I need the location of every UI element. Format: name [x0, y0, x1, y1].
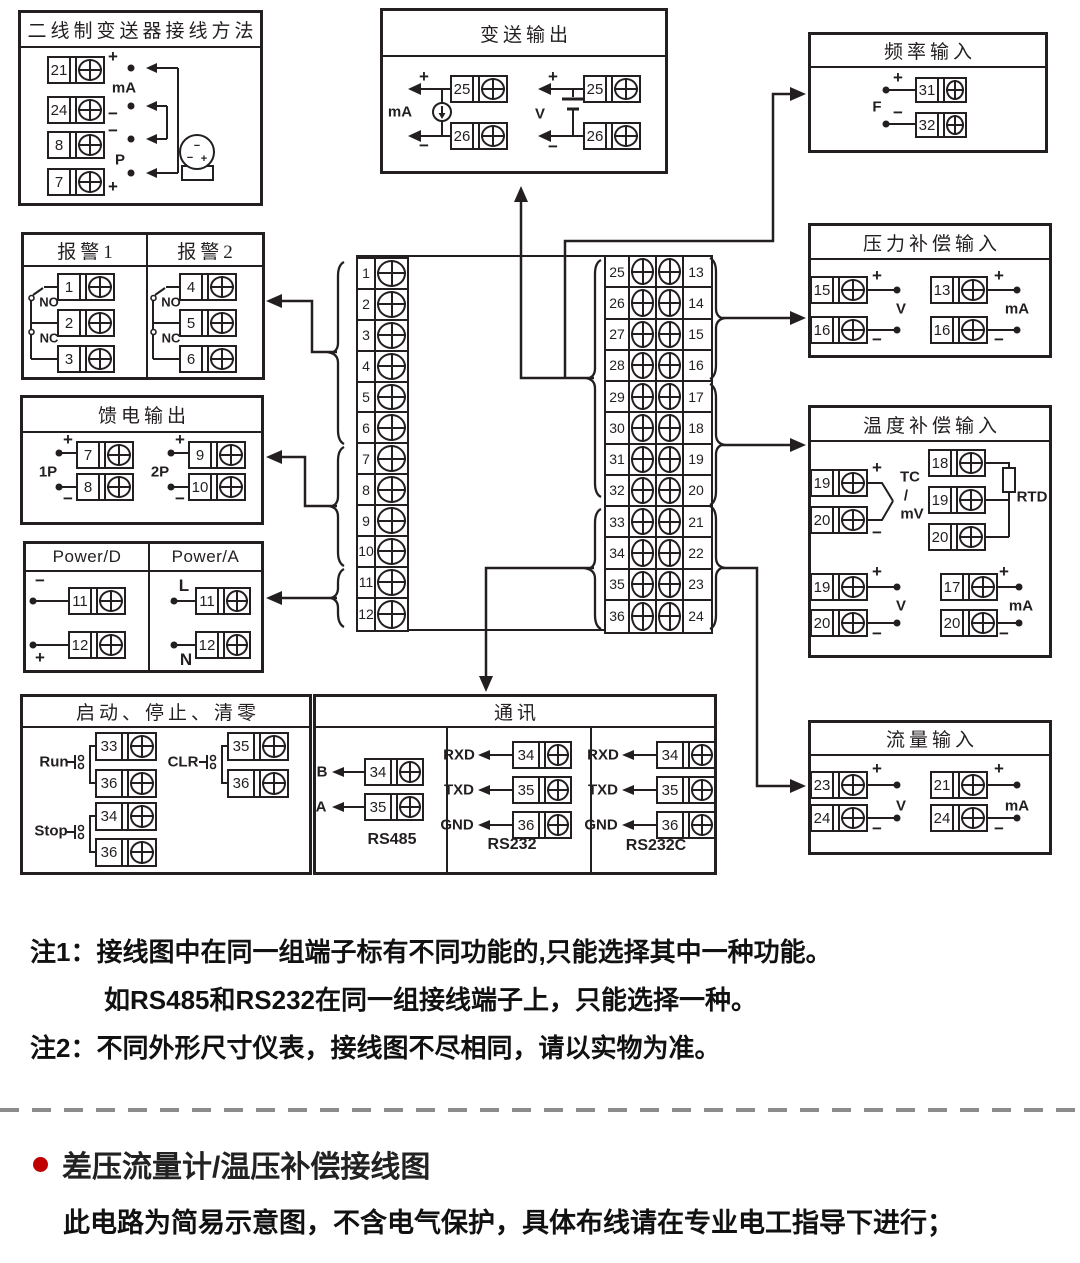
- note-2: 注2：不同外形尺寸仪表，接线图不尽相同，请以实物为准。: [30, 1028, 720, 1065]
- v-label: V: [535, 106, 545, 123]
- terminal: 34: [656, 741, 716, 769]
- screw-icon: [840, 773, 866, 797]
- minus-label: −: [872, 523, 882, 543]
- terminal-row: 1: [358, 259, 407, 290]
- terminal: 34: [95, 802, 157, 831]
- stop-label: Stop: [34, 823, 67, 840]
- screw-icon: [657, 476, 682, 505]
- screw-icon: [106, 443, 132, 467]
- screw-icon: [630, 538, 655, 567]
- arrowhead-icon: [790, 87, 806, 101]
- box-alarm-divider: [146, 265, 148, 377]
- rs232-label: RS232: [488, 836, 537, 854]
- screw-icon: [376, 383, 407, 412]
- screw-icon: [106, 475, 132, 499]
- terminal-number: 13: [932, 278, 954, 302]
- screw-icon: [657, 570, 682, 599]
- box-power-title: Power/D: [53, 547, 122, 567]
- box-alarm-title-band: 报警1报警2: [24, 235, 262, 267]
- terminal-row: 2614: [606, 288, 711, 319]
- terminal-row: 2: [358, 290, 407, 321]
- terminal: 13: [930, 276, 988, 304]
- arrowhead-icon: [266, 294, 282, 308]
- terminal-number: 9: [190, 443, 212, 467]
- mv-label: mV: [900, 506, 923, 523]
- terminal-number: 18: [684, 413, 708, 442]
- plus-label: +: [999, 562, 1009, 582]
- terminal: 31: [915, 77, 967, 103]
- terminal-number: 11: [197, 589, 219, 613]
- box-frequency-input-title-band: 频率输入: [811, 35, 1045, 68]
- terminal-number: 8: [78, 475, 100, 499]
- terminal-number: 20: [684, 476, 708, 505]
- rxd-label: RXD: [587, 747, 619, 764]
- box-power-title-band: Power/DPower/A: [26, 544, 261, 572]
- minus-label: −: [35, 571, 45, 591]
- box-comm-title-band: 通讯: [316, 697, 714, 728]
- terminal-row: 3624: [606, 601, 711, 632]
- screw-icon: [960, 773, 986, 797]
- terminal-number: 25: [585, 77, 607, 101]
- screw-icon: [129, 771, 155, 796]
- terminal-number: 5: [358, 383, 376, 412]
- v-label: V: [896, 301, 906, 318]
- terminal: 11: [68, 587, 126, 615]
- terminal: 34: [512, 741, 572, 769]
- terminal-number: 24: [684, 601, 708, 632]
- box-two-wire-method-title: 二线制变送器接线方法: [23, 16, 257, 43]
- ma-label: mA: [1009, 598, 1033, 615]
- screw-icon: [945, 114, 965, 136]
- terminal: 9: [188, 441, 246, 469]
- plus-label: +: [108, 177, 118, 197]
- terminal-row: 9: [358, 506, 407, 537]
- terminal-row: 3119: [606, 445, 711, 476]
- box-pressure-comp-input-title: 压力补偿输入: [859, 229, 1001, 256]
- wiring-diagram-page: −−+ 二线制变送器接线方法变送输出频率输入报警1报警2馈电输出Power/DP…: [0, 0, 1080, 1263]
- box-power-divider: [148, 570, 150, 670]
- ma-label: mA: [1005, 301, 1029, 318]
- screw-icon: [376, 444, 407, 473]
- run-label: Run: [39, 754, 68, 771]
- terminal: 35: [227, 732, 289, 761]
- terminal-number: 34: [366, 760, 392, 784]
- terminal-number: 14: [684, 288, 708, 317]
- arrowhead-icon: [790, 779, 806, 793]
- plus-label: +: [872, 458, 882, 478]
- screw-icon: [630, 445, 655, 474]
- terminal: 35: [364, 793, 424, 821]
- gnd-label: GND: [584, 817, 617, 834]
- wire-to-alarm: [280, 301, 337, 352]
- note-1-continued: 如RS485和RS232在同一组接线端子上，只能选择一种。: [104, 980, 757, 1017]
- plus-label: +: [63, 430, 73, 450]
- screw-icon: [690, 778, 714, 802]
- screw-icon: [98, 633, 124, 657]
- screw-icon: [657, 351, 682, 380]
- terminal-number: 36: [658, 813, 684, 837]
- plus-label: +: [175, 430, 185, 450]
- screw-icon: [376, 537, 407, 566]
- screw-icon: [129, 734, 155, 759]
- v-label: V: [896, 598, 906, 615]
- terminal: 25: [583, 75, 641, 103]
- b-pin-label: B: [317, 764, 328, 781]
- screw-icon: [480, 124, 506, 148]
- terminal-number: 24: [49, 98, 71, 122]
- terminal-number: 26: [452, 124, 474, 148]
- txd-label: TXD: [588, 782, 618, 799]
- screw-icon: [398, 760, 422, 784]
- screw-icon: [630, 351, 655, 380]
- terminal-row: 11: [358, 568, 407, 599]
- terminal-number: 5: [181, 311, 203, 335]
- terminal-number: 24: [812, 806, 834, 830]
- terminal-number: 16: [812, 318, 834, 342]
- terminal: 1: [57, 273, 115, 301]
- terminal-number: 35: [229, 734, 255, 759]
- box-two-wire-method-title-band: 二线制变送器接线方法: [21, 13, 260, 48]
- box-feed-output-title-band: 馈电输出: [23, 398, 261, 433]
- terminal: 24: [810, 804, 868, 832]
- screw-icon: [958, 525, 984, 549]
- screw-icon: [376, 321, 407, 350]
- box-alarm-title: 报警2: [173, 237, 237, 264]
- ma-label: mA: [1005, 798, 1029, 815]
- arrowhead-icon: [514, 186, 528, 202]
- terminal-number: 18: [930, 451, 952, 475]
- terminal-number: 16: [684, 351, 708, 380]
- minus-label: −: [872, 819, 882, 839]
- screw-icon: [657, 538, 682, 567]
- terminal-number: 3: [358, 321, 376, 350]
- terminal: 26: [450, 122, 508, 150]
- slash-label: /: [904, 488, 908, 505]
- terminal-row: 3018: [606, 413, 711, 444]
- arrowhead-icon: [266, 450, 282, 464]
- screw-icon: [657, 320, 682, 349]
- terminal-number: 6: [181, 347, 203, 371]
- minus-label: −: [175, 489, 185, 509]
- l-label: L: [179, 576, 189, 596]
- terminal: 5: [179, 309, 237, 337]
- screw-icon: [376, 259, 407, 288]
- terminal: 20: [810, 609, 868, 637]
- screw-icon: [970, 611, 996, 635]
- screw-icon: [630, 257, 655, 286]
- plus-label: +: [35, 648, 45, 668]
- arrowhead-icon: [479, 676, 493, 692]
- section-subheading: 此电路为简易示意图，不含电气保护，具体布线请在专业电工指导下进行；: [63, 1201, 954, 1240]
- terminal-number: 35: [514, 778, 540, 802]
- plus-label: +: [994, 759, 1004, 779]
- screw-icon: [840, 806, 866, 830]
- screw-icon: [376, 352, 407, 381]
- terminal-number: 13: [684, 257, 708, 286]
- terminal-number: 24: [932, 806, 954, 830]
- box-pressure-comp-input-title-band: 压力补偿输入: [811, 226, 1049, 260]
- terminal-number: 8: [358, 475, 376, 504]
- terminal-number: 7: [49, 170, 71, 194]
- terminal: 8: [47, 131, 105, 159]
- box-transmit-output-title: 变送输出: [476, 20, 572, 47]
- terminal: 8: [76, 473, 134, 501]
- screw-icon: [630, 476, 655, 505]
- terminal-number: 26: [606, 288, 630, 317]
- terminal: 17: [940, 573, 998, 601]
- box-temp-comp-input-title-band: 温度补偿输入: [811, 408, 1049, 442]
- minus-label: −: [419, 136, 429, 156]
- box-power-title: Power/A: [172, 547, 240, 567]
- terminal-row: 8: [358, 475, 407, 506]
- section-divider: [0, 1108, 1080, 1112]
- screw-icon: [958, 451, 984, 475]
- box-temp-comp-input-title: 温度补偿输入: [859, 411, 1001, 438]
- screw-icon: [77, 98, 103, 122]
- 2p-label: 2P: [151, 464, 169, 481]
- screw-icon: [98, 589, 124, 613]
- terminal-number: 34: [514, 743, 540, 767]
- gnd-label: GND: [440, 817, 473, 834]
- terminal: 19: [810, 573, 868, 601]
- terminal: 16: [930, 316, 988, 344]
- terminal-number: 28: [606, 351, 630, 380]
- terminal-number: 27: [606, 320, 630, 349]
- plus-label: +: [419, 67, 429, 87]
- terminal-row: 2513: [606, 257, 711, 288]
- screw-icon: [546, 813, 570, 837]
- terminal-number: 20: [812, 611, 834, 635]
- box-transmit-output-title-band: 变送输出: [383, 11, 665, 57]
- terminal-row: 3422: [606, 538, 711, 569]
- terminal-number: 12: [358, 599, 376, 630]
- screw-icon: [657, 601, 682, 632]
- center-left-terminals: 123456789101112: [356, 257, 409, 632]
- section-heading: 差压流量计/温压补偿接线图: [62, 1142, 430, 1186]
- screw-icon: [209, 311, 235, 335]
- terminal-number: 36: [97, 840, 123, 865]
- box-feed-output-title: 馈电输出: [94, 401, 190, 428]
- brace-terminals-11-12: [331, 569, 344, 627]
- minus-label: −: [994, 819, 1004, 839]
- plus-label: +: [872, 759, 882, 779]
- terminal: 24: [47, 96, 105, 124]
- screw-icon: [630, 288, 655, 317]
- terminal-number: 10: [190, 475, 212, 499]
- terminal-number: 4: [181, 275, 203, 299]
- screw-icon: [87, 311, 113, 335]
- screw-icon: [657, 257, 682, 286]
- screw-icon: [376, 506, 407, 535]
- terminal-number: 2: [59, 311, 81, 335]
- screw-icon: [960, 318, 986, 342]
- terminal-number: 9: [358, 506, 376, 535]
- terminal-number: 12: [70, 633, 92, 657]
- screw-icon: [840, 318, 866, 342]
- minus-label: −: [63, 489, 73, 509]
- terminal-number: 35: [366, 795, 392, 819]
- terminal-number: 36: [514, 813, 540, 837]
- terminal-number: 17: [684, 382, 708, 411]
- terminal-row: 5: [358, 383, 407, 414]
- tc-label: TC: [900, 469, 920, 486]
- terminal-number: 30: [606, 413, 630, 442]
- screw-icon: [225, 633, 249, 657]
- terminal-number: 21: [684, 507, 708, 536]
- terminal-number: 35: [606, 570, 630, 599]
- wire-to-feed-output: [280, 457, 337, 506]
- terminal-number: 1: [59, 275, 81, 299]
- terminal-number: 20: [942, 611, 964, 635]
- terminal-number: 22: [684, 538, 708, 567]
- terminal-row: 3523: [606, 570, 711, 601]
- wire-to-flow-input: [722, 568, 792, 786]
- terminal: 21: [930, 771, 988, 799]
- minus-label: −: [893, 103, 903, 123]
- ma-label: mA: [388, 104, 412, 121]
- terminal: 12: [68, 631, 126, 659]
- screw-icon: [657, 382, 682, 411]
- minus-label: −: [872, 624, 882, 644]
- screw-icon: [77, 170, 103, 194]
- plus-label: +: [872, 266, 882, 286]
- terminal-number: 35: [658, 778, 684, 802]
- terminal-row: 7: [358, 444, 407, 475]
- terminal-number: 19: [812, 471, 834, 495]
- terminal: 35: [656, 776, 716, 804]
- box-comm-title: 通讯: [490, 698, 540, 725]
- terminal: 6: [179, 345, 237, 373]
- screw-icon: [630, 570, 655, 599]
- brace-terminals-7-10: [331, 447, 344, 566]
- terminal-number: 21: [49, 58, 71, 82]
- arrowhead-icon: [266, 591, 282, 605]
- terminal-row: 2816: [606, 351, 711, 382]
- rtd-label: RTD: [1017, 489, 1048, 506]
- v-label: V: [896, 798, 906, 815]
- no-label: NO: [161, 295, 181, 310]
- screw-icon: [840, 611, 866, 635]
- plus-label: +: [893, 68, 903, 88]
- terminal: 2: [57, 309, 115, 337]
- terminal-number: 11: [70, 589, 92, 613]
- terminal-number: 15: [684, 320, 708, 349]
- terminal: 36: [656, 811, 716, 839]
- box-run-stop-clear-title-band: 启动、停止、清零: [23, 697, 309, 728]
- terminal: 23: [810, 771, 868, 799]
- terminal: 7: [76, 441, 134, 469]
- screw-icon: [546, 743, 570, 767]
- terminal: 35: [512, 776, 572, 804]
- terminal-number: 33: [606, 507, 630, 536]
- terminal-number: 36: [229, 771, 255, 796]
- box-frequency-input-title: 频率输入: [880, 37, 976, 64]
- rs232c-label: RS232C: [626, 837, 686, 855]
- screw-icon: [945, 79, 965, 101]
- terminal-number: 34: [658, 743, 684, 767]
- terminal: 25: [450, 75, 508, 103]
- terminal: 16: [810, 316, 868, 344]
- screw-icon: [225, 589, 249, 613]
- terminal-number: 26: [585, 124, 607, 148]
- screw-icon: [87, 275, 113, 299]
- terminal-number: 31: [917, 79, 939, 101]
- nc-label: NC: [40, 331, 59, 346]
- screw-icon: [690, 813, 714, 837]
- plus-label: +: [994, 266, 1004, 286]
- terminal: 4: [179, 273, 237, 301]
- minus-label: −: [872, 330, 882, 350]
- terminal-number: 32: [917, 114, 939, 136]
- terminal-number: 3: [59, 347, 81, 371]
- terminal: 32: [915, 112, 967, 138]
- terminal-number: 17: [942, 575, 964, 599]
- plus-label: +: [872, 562, 882, 582]
- terminal-number: 20: [812, 508, 834, 532]
- terminal-number: 7: [358, 444, 376, 473]
- terminal: 3: [57, 345, 115, 373]
- terminal-number: 25: [606, 257, 630, 286]
- screw-icon: [261, 771, 287, 796]
- terminal: 36: [95, 838, 157, 867]
- terminal-number: 2: [358, 290, 376, 319]
- terminal-row: 3321: [606, 507, 711, 538]
- terminal: 18: [928, 449, 986, 477]
- terminal: 33: [95, 732, 157, 761]
- terminal-number: 36: [606, 601, 630, 632]
- screw-icon: [129, 804, 155, 829]
- minus-label: −: [108, 121, 118, 141]
- plus-label: +: [108, 47, 118, 67]
- terminal: 20: [810, 506, 868, 534]
- box-flow-input-title: 流量输入: [882, 725, 978, 752]
- screw-icon: [958, 488, 984, 512]
- screw-icon: [970, 575, 996, 599]
- terminal-number: 23: [684, 570, 708, 599]
- box-flow-input-title-band: 流量输入: [811, 723, 1049, 756]
- note-1: 注1：接线图中在同一组端子标有不同功能的,只能选择其中一种功能。: [30, 932, 832, 969]
- brace-terminals-1-6: [331, 262, 344, 444]
- screw-icon: [657, 413, 682, 442]
- ma-label: mA: [112, 80, 136, 97]
- terminal-number: 7: [78, 443, 100, 467]
- screw-icon: [960, 278, 986, 302]
- terminal: 7: [47, 168, 105, 196]
- screw-icon: [398, 795, 422, 819]
- terminal-row: 3220: [606, 476, 711, 507]
- terminal-number: 36: [97, 771, 123, 796]
- terminal-row: 6: [358, 413, 407, 444]
- txd-label: TXD: [444, 782, 474, 799]
- terminal-number: 10: [358, 537, 376, 566]
- terminal-number: 34: [606, 538, 630, 567]
- p-label: P: [115, 152, 125, 169]
- screw-icon: [480, 77, 506, 101]
- terminal-row: 12: [358, 599, 407, 630]
- terminal-number: 29: [606, 382, 630, 411]
- screw-icon: [657, 288, 682, 317]
- screw-icon: [960, 806, 986, 830]
- terminal-number: 25: [452, 77, 474, 101]
- screw-icon: [840, 575, 866, 599]
- screw-icon: [376, 475, 407, 504]
- terminal-number: 12: [197, 633, 219, 657]
- screw-icon: [630, 413, 655, 442]
- a-pin-label: A: [316, 799, 327, 816]
- screw-icon: [546, 778, 570, 802]
- terminal-row: 10: [358, 537, 407, 568]
- screw-icon: [613, 77, 639, 101]
